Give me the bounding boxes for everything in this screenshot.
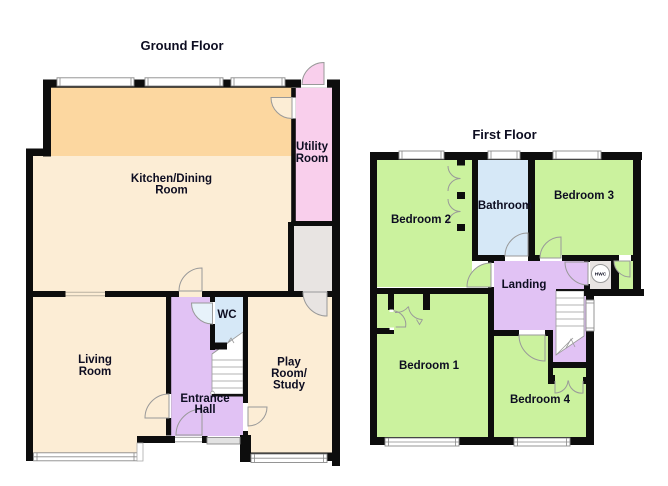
svg-text:Living: Living: [78, 354, 112, 366]
svg-text:Room: Room: [155, 185, 188, 197]
svg-text:WC: WC: [217, 309, 236, 321]
svg-text:Room: Room: [296, 153, 329, 165]
svg-text:Landing: Landing: [502, 279, 547, 291]
svg-text:Room/: Room/: [271, 368, 308, 380]
svg-text:Utility: Utility: [296, 141, 329, 153]
svg-text:Study: Study: [273, 380, 306, 392]
svg-text:First Floor: First Floor: [472, 127, 536, 142]
svg-text:Bedroom 2: Bedroom 2: [391, 214, 451, 226]
svg-text:Bathroom: Bathroom: [478, 200, 532, 212]
svg-text:HWC: HWC: [595, 272, 607, 278]
svg-text:Kitchen/Dining: Kitchen/Dining: [131, 173, 212, 185]
svg-text:Bedroom 4: Bedroom 4: [510, 394, 571, 406]
svg-text:Bedroom 3: Bedroom 3: [554, 190, 614, 202]
svg-text:Ground Floor: Ground Floor: [140, 38, 223, 53]
svg-text:Hall: Hall: [194, 404, 215, 416]
svg-text:Room: Room: [79, 366, 112, 378]
svg-text:Play: Play: [277, 357, 301, 369]
svg-text:Bedroom 1: Bedroom 1: [399, 360, 460, 372]
